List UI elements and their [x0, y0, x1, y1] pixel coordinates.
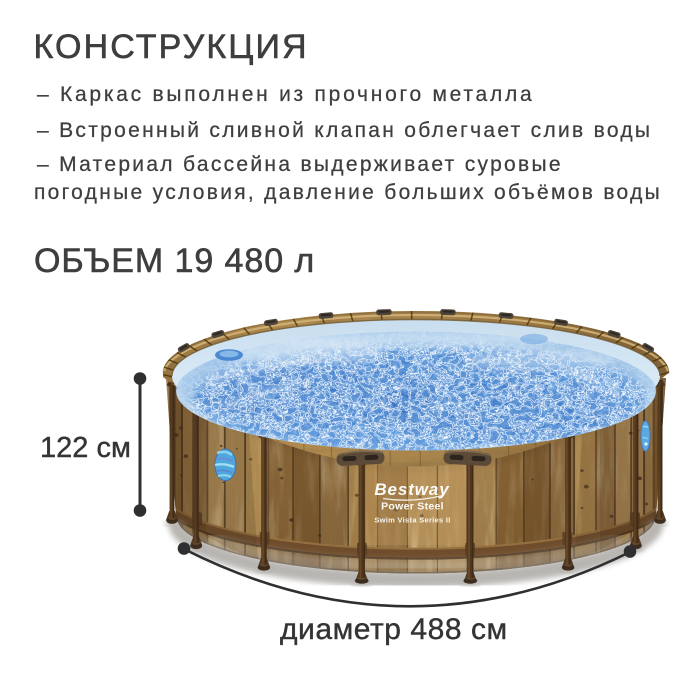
svg-text:Power Steel: Power Steel: [381, 501, 444, 513]
svg-text:Swim Vista Series II: Swim Vista Series II: [374, 516, 450, 525]
